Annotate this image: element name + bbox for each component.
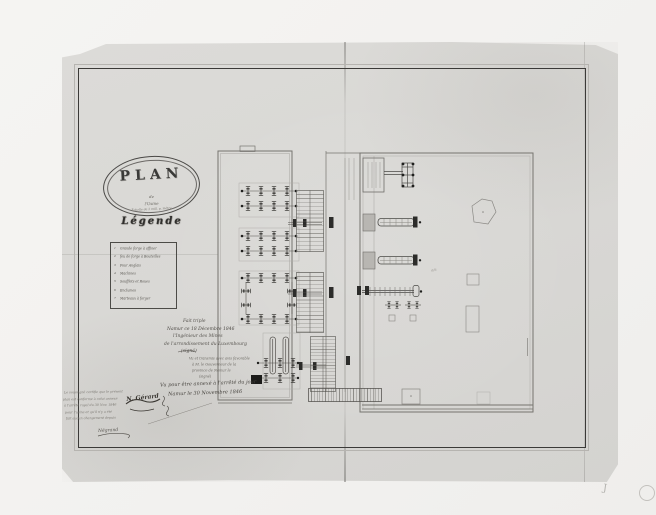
legend-item-label: Soufflets et Roues [120, 280, 150, 283]
certification-signature-line: (signé) [181, 349, 197, 354]
legend-item-number: 2 [114, 255, 116, 258]
legend-item-label: Enclumes [120, 289, 136, 292]
entrance-steps [308, 388, 382, 402]
footnote-line: Le soussigné certifie que le présent [64, 390, 123, 394]
legend-item-number: 6 [114, 289, 116, 292]
certification-line: Fait triple [183, 319, 206, 324]
legend-item-number: 7 [114, 297, 116, 300]
legend-box: 1Grande forge à affiner 2feu de forge à … [110, 242, 177, 309]
footnote-line: fait aucun changement depuis [66, 416, 116, 420]
floor-plan-drawing [0, 0, 656, 515]
legend-item-label: feu de forge à Bouteilles [120, 255, 160, 258]
legend-item-label: Marteaux à forger [120, 297, 150, 300]
right-hall-machines [357, 158, 496, 404]
legend-item-label: Grande forge à affiner [120, 247, 157, 250]
footnote-line: à l'arrêté royal du 30 Nov. 1846 [64, 403, 117, 407]
legend-item-number: 3 [114, 264, 116, 267]
legend-item: 7Marteaux à forger [111, 297, 176, 305]
transmittal-line: Vu et transmis avec avis favorable [189, 357, 250, 361]
certification-line: de l'arrondissement du Luxembourg [164, 342, 247, 347]
transmittal-line: (signé) [199, 375, 211, 379]
staircase-upper [296, 190, 324, 252]
staircase-lower [310, 336, 336, 392]
footnote-signature: Négrand [98, 427, 118, 433]
legend-item: 6Enclumes [111, 289, 176, 297]
legend-item-label: Four Anglais [120, 264, 141, 267]
legend-item: 5Soufflets et Roues [111, 280, 176, 288]
legend-item: 3Four Anglais [111, 264, 176, 272]
margin-circle-mark [639, 485, 655, 501]
title-line-de: de [127, 195, 176, 199]
certification-line: l'Ingénieur des Mines [173, 334, 223, 339]
legend-item-number: 1 [114, 247, 116, 250]
legend-item-number: 4 [114, 272, 116, 275]
machine-rows [241, 187, 299, 385]
building-walls [218, 146, 533, 412]
legend-item-number: 5 [114, 280, 116, 283]
transmittal-line: province de Namur le [192, 369, 231, 373]
legend-item-label: Machines [120, 272, 136, 275]
staircase-middle [296, 272, 324, 333]
transmittal-line: à M. le Gouverneur de la [192, 363, 236, 367]
floor-pit-outline [472, 199, 496, 224]
footnote-line: plan est conforme à celui annexé [63, 397, 118, 401]
certification-line: Namur ce 18 Décembre 1846 [167, 327, 234, 332]
legend-item: 2feu de forge à Bouteilles [111, 255, 176, 263]
photograph-of-plan: PLAN de l'Usine Échelle de 2 mill. p. mè… [0, 0, 656, 515]
footnote-line: pour l'usine et qu'il n'y a été [65, 410, 112, 414]
legend-heading: Légende [112, 216, 192, 227]
